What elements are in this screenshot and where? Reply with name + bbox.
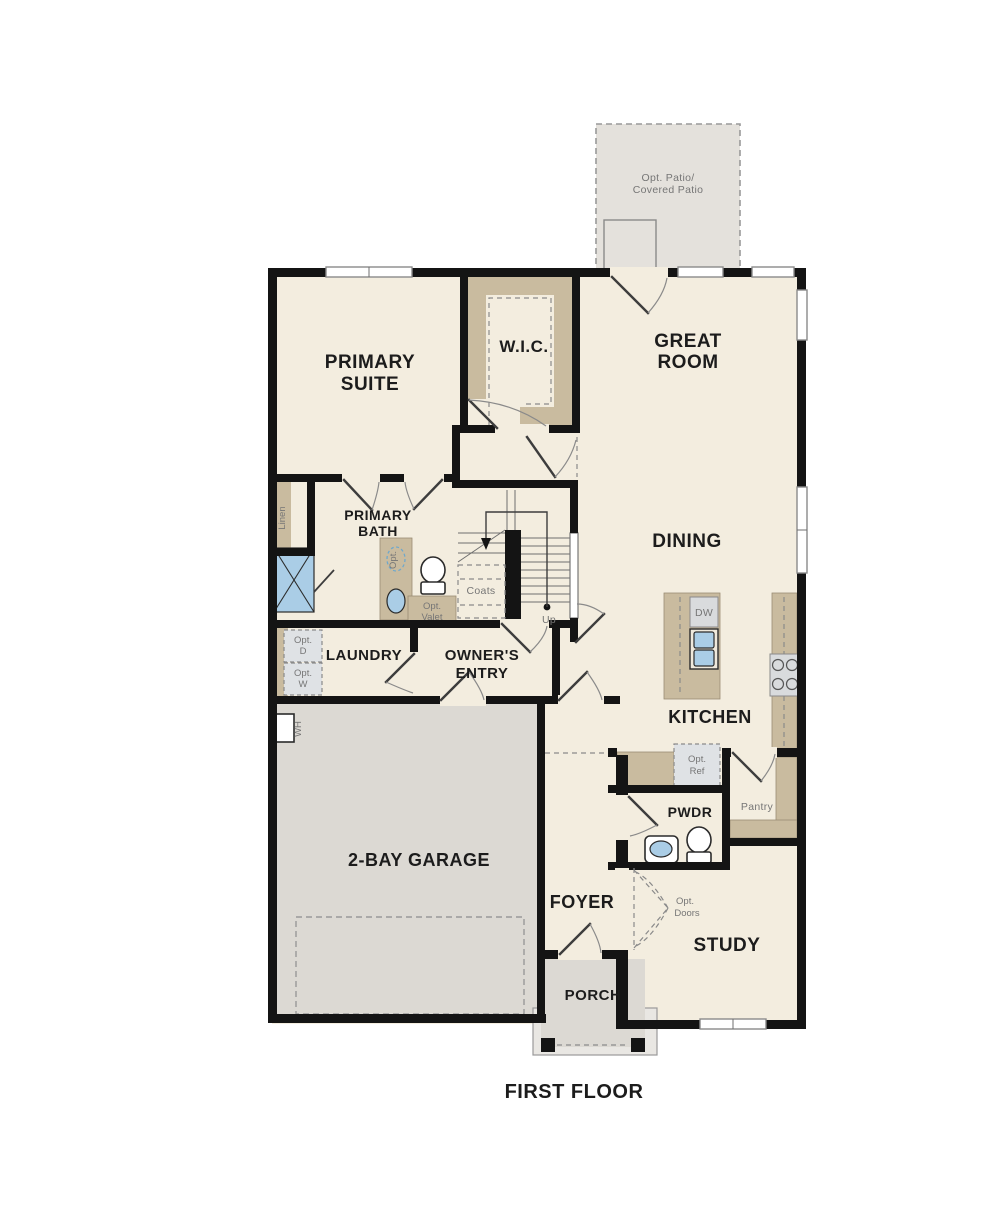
- room-label-great-room-2: ROOM: [657, 352, 718, 373]
- porch-post-left: [541, 1038, 555, 1052]
- annotation-opt-patio-1: Opt. Patio/: [642, 172, 695, 184]
- room-label-pantry: Pantry: [741, 801, 774, 813]
- annotation-up: Up: [542, 614, 556, 626]
- study-window: [700, 1019, 766, 1029]
- annotation-opt-sink: Opt.: [388, 551, 399, 569]
- stair-wall: [505, 530, 521, 620]
- bath-toilet: [421, 557, 445, 594]
- bath-sink: [387, 589, 405, 613]
- stair-railing: [570, 533, 578, 618]
- room-label-primary-bath-2: BATH: [358, 523, 398, 539]
- great-room-window-2: [752, 267, 794, 277]
- annotation-dw: DW: [695, 607, 713, 619]
- room-label-primary-bath-1: PRIMARY: [344, 507, 412, 523]
- annotation-linen: Linen: [277, 506, 288, 529]
- room-label-foyer: FOYER: [550, 892, 615, 912]
- room-label-pwdr: PWDR: [668, 804, 713, 820]
- annotation-opt-w-2: W: [299, 679, 308, 690]
- room-label-wic: W.I.C.: [499, 337, 548, 356]
- dining-window: [797, 487, 807, 573]
- room-label-garage: 2-BAY GARAGE: [348, 850, 490, 870]
- room-label-kitchen: KITCHEN: [668, 707, 752, 727]
- annotation-opt-d-1: Opt.: [294, 635, 312, 646]
- floor-plan-page: PRIMARY SUITE W.I.C. GREAT ROOM DINING P…: [0, 0, 1000, 1216]
- annotation-opt-w-1: Opt.: [294, 668, 312, 679]
- kitchen-sink-bowl-2: [694, 650, 714, 666]
- room-label-owners-entry-2: ENTRY: [456, 665, 509, 682]
- annotation-opt-doors-1: Opt.: [676, 896, 694, 907]
- annotation-wh: WH: [293, 721, 304, 737]
- room-label-great-room-1: GREAT: [654, 331, 722, 352]
- kitchen-sink-bowl-1: [694, 632, 714, 648]
- annotation-opt-valet-2: Valet: [422, 612, 443, 623]
- powder-toilet: [687, 827, 711, 863]
- plan-title: FIRST FLOOR: [505, 1081, 644, 1103]
- annotation-opt-valet-1: Opt.: [423, 601, 441, 612]
- room-label-laundry: LAUNDRY: [326, 647, 402, 664]
- porch-post-right: [631, 1038, 645, 1052]
- primary-suite-window: [326, 267, 412, 277]
- opt-refrigerator: [674, 744, 720, 786]
- room-label-primary-suite-1: PRIMARY: [325, 352, 415, 373]
- room-label-porch: PORCH: [565, 987, 622, 1004]
- annotation-opt-ref-2: Ref: [690, 766, 705, 777]
- powder-sink: [645, 836, 678, 863]
- annotation-coats: Coats: [467, 585, 496, 597]
- range-cooktop: [770, 654, 800, 696]
- room-label-primary-suite-2: SUITE: [341, 374, 399, 395]
- annotation-opt-d-2: D: [300, 646, 307, 657]
- annotation-opt-ref-1: Opt.: [688, 754, 706, 765]
- great-room-side-window: [797, 290, 807, 340]
- annotation-opt-doors-2: Doors: [674, 908, 700, 919]
- kitchen-counter-right: [770, 593, 800, 752]
- floor-plan-drawing: PRIMARY SUITE W.I.C. GREAT ROOM DINING P…: [0, 0, 1000, 1216]
- room-label-study: STUDY: [694, 935, 761, 956]
- annotation-opt-patio-2: Covered Patio: [633, 184, 703, 196]
- patio-step: [604, 220, 656, 272]
- room-label-dining: DINING: [652, 531, 722, 552]
- room-label-owners-entry-1: OWNER'S: [445, 647, 520, 664]
- great-room-window-1: [678, 267, 723, 277]
